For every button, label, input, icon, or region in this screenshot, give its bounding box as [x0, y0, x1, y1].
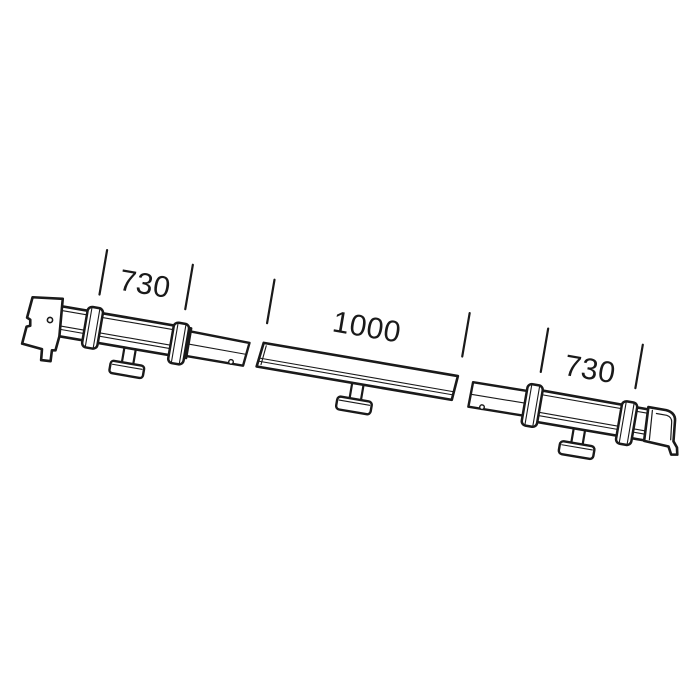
dimension-tick [541, 329, 548, 372]
dimension-label-left: 730 [117, 264, 173, 305]
fastener-hole [479, 404, 484, 409]
dimension-tick [267, 280, 274, 323]
dimension-label-right: 730 [562, 349, 618, 390]
dimension-tick [462, 313, 469, 356]
dimension-tick [185, 265, 193, 309]
left-end-bracket [20, 293, 66, 362]
dimension-left: 730 [100, 250, 193, 309]
right-rail-section [463, 374, 685, 473]
left-rail-section [20, 293, 252, 395]
dimension-label-middle: 1000 [330, 305, 403, 349]
middle-rail-section [252, 342, 458, 428]
left-extension-rail [184, 331, 249, 367]
dimension-right: 730 [540, 329, 643, 394]
middle-rail-profile [257, 342, 458, 400]
right-end-cap [641, 407, 684, 456]
fastener-hole [228, 359, 233, 364]
bracket-hole [47, 317, 53, 323]
parts-diagram-canvas: 730 1000 730 [0, 0, 700, 700]
dimension-tick [100, 250, 108, 294]
rail-parts-diagram: 730 1000 730 [0, 0, 700, 700]
dimension-tick [635, 345, 642, 388]
right-extension-rail [468, 382, 530, 417]
